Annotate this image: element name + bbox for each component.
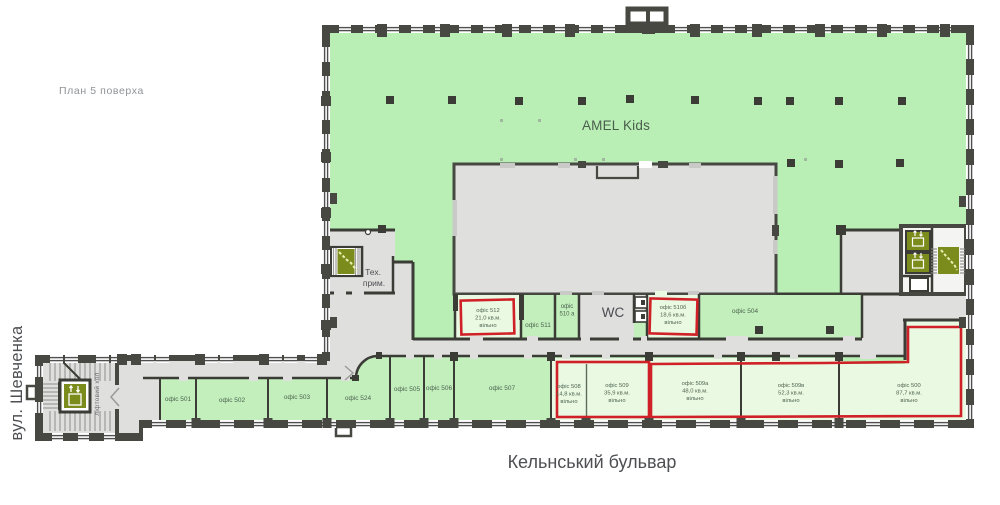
svg-text:офіс 503: офіс 503 [284,393,311,401]
svg-text:офіс 501: офіс 501 [165,395,192,403]
svg-text:офіс 511: офіс 511 [525,321,551,329]
svg-text:WC: WC [602,305,625,320]
svg-text:офіс 509: офіс 509 [605,383,628,389]
svg-text:вільно: вільно [479,323,496,329]
svg-text:офіс 508: офіс 508 [557,384,580,390]
svg-text:вільно: вільно [900,398,917,404]
svg-text:ліфтовий хол: ліфтовий хол [93,372,101,415]
svg-text:вільно: вільно [560,399,577,405]
svg-text:21,0 кв.м.: 21,0 кв.м. [475,316,501,322]
svg-text:офіс 510б: офіс 510б [660,305,687,311]
svg-text:Кельнський бульвар: Кельнський бульвар [508,452,677,472]
svg-text:510 а: 510 а [559,312,575,318]
svg-text:AMEL Kids: AMEL Kids [582,118,650,133]
svg-text:вул. Шевченка: вул. Шевченка [8,325,26,440]
svg-text:офіс 507: офіс 507 [489,384,516,392]
svg-text:вільно: вільно [608,398,625,404]
svg-text:офіс: офіс [561,304,574,310]
svg-text:офіс 502: офіс 502 [219,396,246,404]
svg-text:87,7 кв.м.: 87,7 кв.м. [896,391,922,397]
svg-text:офіс 505: офіс 505 [394,385,421,393]
svg-text:прим.: прим. [363,278,385,288]
svg-text:Тех.: Тех. [365,267,381,277]
svg-text:вільно: вільно [664,320,681,326]
svg-text:48,0 кв.м.: 48,0 кв.м. [682,389,708,395]
svg-text:офіс 506: офіс 506 [426,384,453,392]
svg-text:18,6 кв.м.: 18,6 кв.м. [660,313,686,319]
svg-text:План 5 поверха: План 5 поверха [59,85,144,97]
svg-text:офіс 524: офіс 524 [345,394,372,402]
svg-text:офіс 512: офіс 512 [476,308,499,314]
svg-text:14,8 кв.м.: 14,8 кв.м. [556,392,582,398]
svg-text:вільно: вільно [782,398,799,404]
svg-text:офіс 509в: офіс 509в [778,383,805,389]
svg-text:офіс 509а: офіс 509а [682,381,709,387]
svg-text:офіс 504: офіс 504 [732,307,759,315]
svg-text:вільно: вільно [686,396,703,402]
svg-text:52,3 кв.м.: 52,3 кв.м. [778,391,804,397]
svg-text:35,9 кв.м.: 35,9 кв.м. [604,391,630,397]
svg-text:офіс 500: офіс 500 [897,383,920,389]
